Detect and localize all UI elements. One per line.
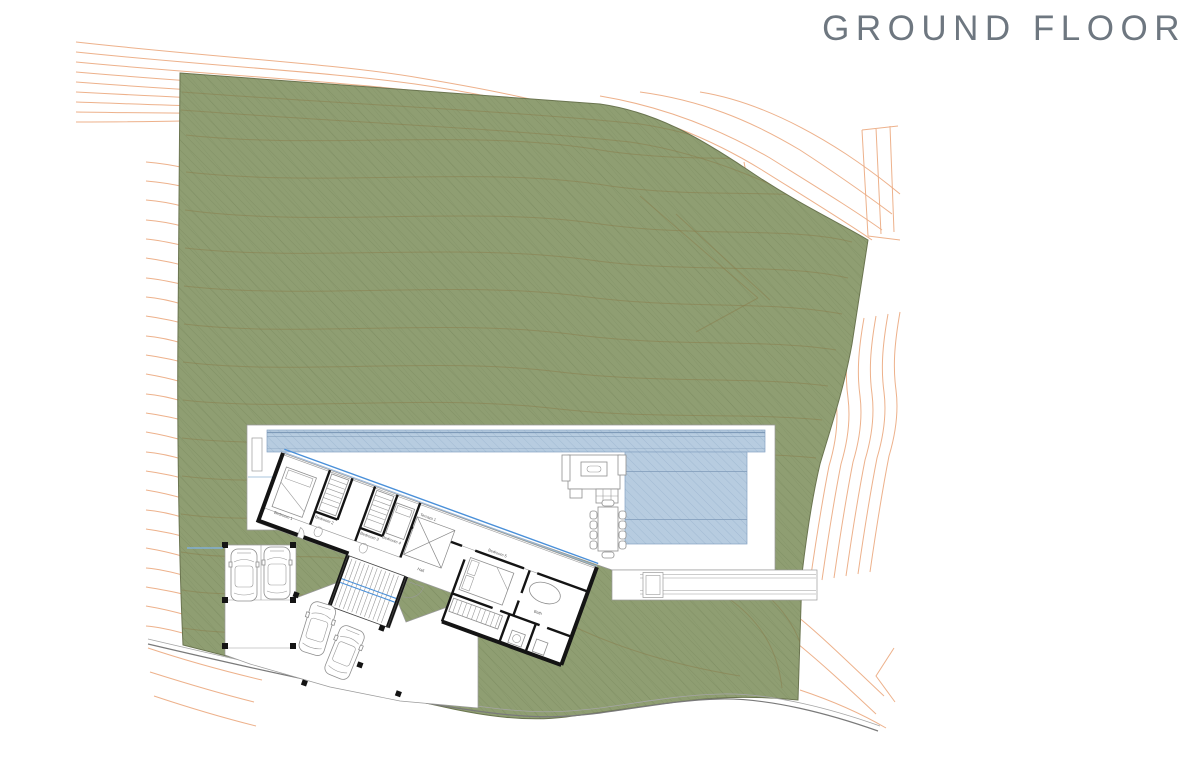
site-plan-drawing: Bedroom 1 Bedroom 2 Bedroom 3 Bedroom 4 … <box>0 0 1200 763</box>
ground-floor-title: GROUND FLOOR <box>822 9 1186 48</box>
planter <box>252 438 262 471</box>
walkway <box>612 570 817 600</box>
car-2 <box>262 547 292 599</box>
floor-plan-page: Bedroom 1 Bedroom 2 Bedroom 3 Bedroom 4 … <box>0 0 1200 763</box>
car-1 <box>229 549 259 601</box>
